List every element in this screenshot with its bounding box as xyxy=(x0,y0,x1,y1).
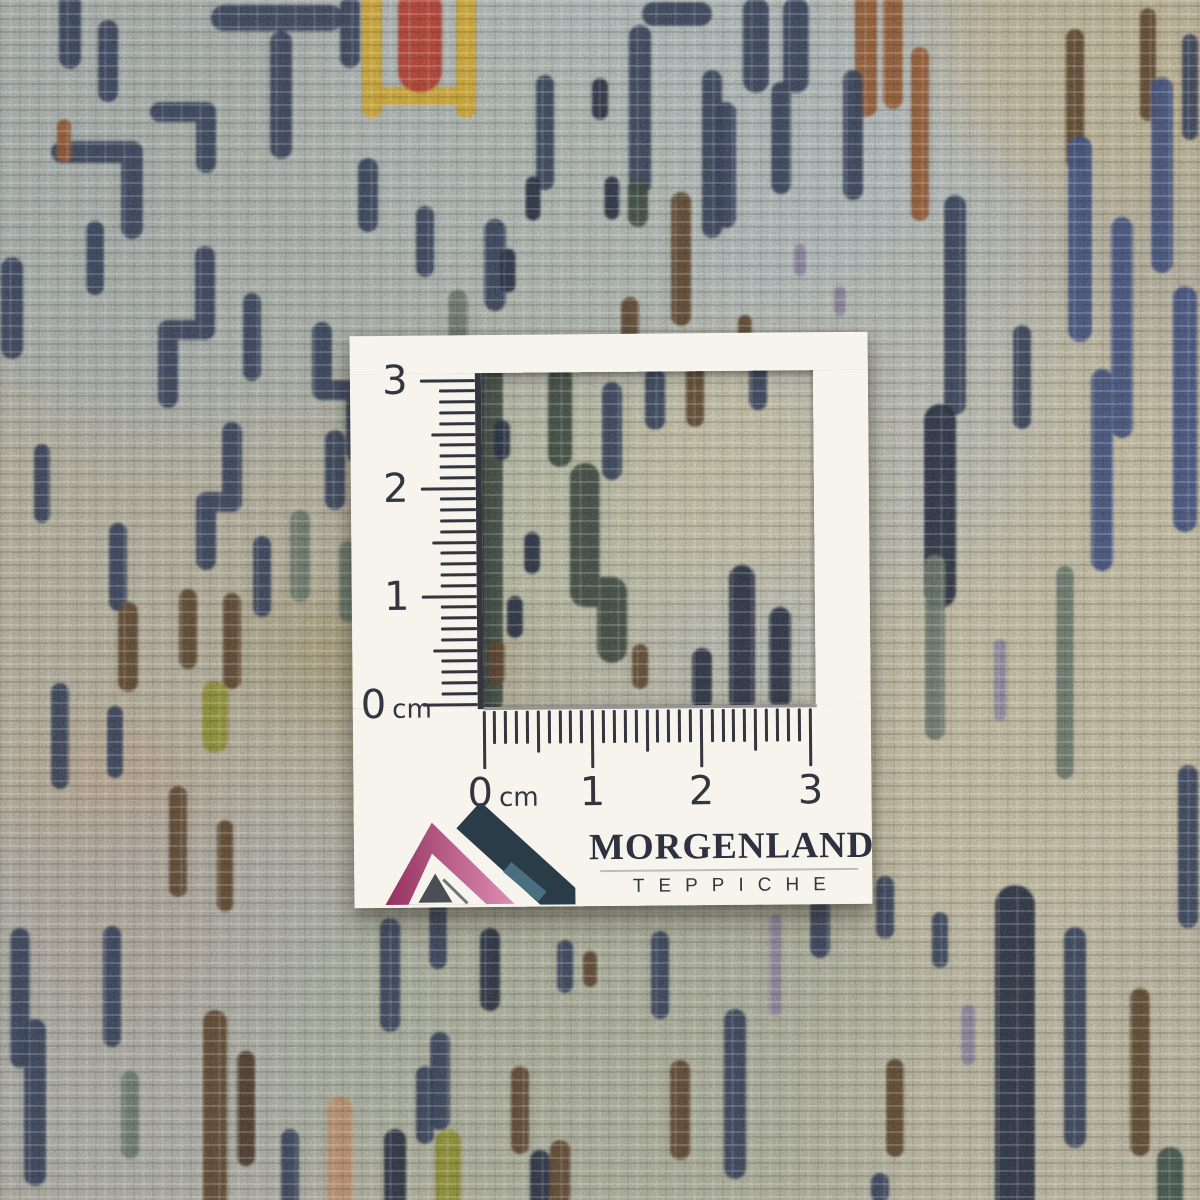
horizontal-ruler-tick xyxy=(721,709,724,742)
vertical-ruler-tick xyxy=(439,411,475,414)
horizontal-ruler-tick xyxy=(624,710,627,743)
horizontal-ruler-tick xyxy=(689,709,692,742)
card-frame-right xyxy=(813,370,871,704)
vertical-ruler-tick xyxy=(440,465,476,468)
vertical-ruler-tick xyxy=(440,562,476,565)
mountain-logo-icon xyxy=(380,802,576,906)
vertical-ruler-tick xyxy=(420,379,475,382)
horizontal-ruler-tick xyxy=(808,708,812,766)
vertical-ruler-tick xyxy=(440,530,476,533)
vertical-ruler-unit: cm xyxy=(392,697,432,723)
vertical-ruler-tick xyxy=(439,400,475,403)
horizontal-ruler-tick xyxy=(515,711,518,744)
horizontal-ruler-tick xyxy=(569,710,572,743)
horizontal-ruler-tick xyxy=(591,710,595,768)
horizontal-ruler-label-3: 3 xyxy=(793,770,827,810)
vertical-ruler-tick xyxy=(441,605,477,608)
vertical-ruler-tick xyxy=(441,659,477,662)
card-frame-top xyxy=(350,332,868,375)
vertical-ruler-tick xyxy=(441,584,477,587)
horizontal-ruler-tick xyxy=(754,709,757,751)
horizontal-ruler-tick xyxy=(743,709,746,742)
vertical-ruler-tick xyxy=(440,508,476,511)
vertical-ruler-ticks xyxy=(350,373,484,714)
brand-name: MORGENLAND xyxy=(589,826,869,868)
horizontal-ruler-tick xyxy=(656,710,659,743)
horizontal-ruler-tick xyxy=(776,709,779,742)
horizontal-ruler-tick xyxy=(526,711,529,744)
horizontal-ruler-tick xyxy=(504,711,507,744)
horizontal-ruler-tick xyxy=(787,708,790,741)
horizontal-ruler-tick xyxy=(493,711,496,744)
horizontal-ruler-tick xyxy=(580,710,583,743)
vertical-ruler-tick xyxy=(440,454,476,457)
horizontal-ruler-tick xyxy=(645,710,648,752)
vertical-ruler-tick xyxy=(433,649,477,652)
horizontal-ruler-tick xyxy=(700,709,704,767)
horizontal-ruler-tick xyxy=(667,709,670,742)
horizontal-ruler-tick xyxy=(732,709,735,742)
vertical-ruler-tick xyxy=(441,638,477,641)
vertical-ruler-label-2: 2 xyxy=(378,469,414,509)
horizontal-ruler-tick xyxy=(558,710,561,743)
horizontal-ruler-tick xyxy=(634,710,637,743)
horizontal-ruler-tick xyxy=(678,709,681,742)
vertical-ruler-tick xyxy=(441,627,477,630)
horizontal-ruler-tick xyxy=(602,710,605,743)
card-cutout-window xyxy=(481,370,816,707)
vertical-ruler-tick xyxy=(439,443,475,446)
brand-division: TEPPICHE xyxy=(589,874,869,898)
vertical-ruler-label-1: 1 xyxy=(379,577,415,617)
vertical-ruler-tick xyxy=(440,497,476,500)
horizontal-ruler-tick xyxy=(765,709,768,742)
horizontal-ruler-tick xyxy=(547,711,550,744)
vertical-ruler-tick xyxy=(442,692,478,695)
vertical-ruler-zero: 0 xyxy=(361,685,387,725)
vertical-ruler-tick xyxy=(422,595,477,598)
vertical-ruler-tick xyxy=(421,487,476,490)
carpet-photo: 3 2 1 0 cm 0 cm 1 2 3 xyxy=(0,0,1200,1200)
horizontal-ruler-tick xyxy=(613,710,616,743)
horizontal-ruler-tick xyxy=(710,709,713,742)
vertical-ruler-tick xyxy=(439,389,475,392)
horizontal-ruler-tick xyxy=(537,711,540,753)
horizontal-ruler-tick xyxy=(482,711,486,769)
vertical-ruler-label-0: 0 cm xyxy=(361,685,432,726)
vertical-ruler-tick xyxy=(440,551,476,554)
vertical-ruler-tick xyxy=(439,422,475,425)
vertical-ruler-tick xyxy=(440,519,476,522)
vertical-ruler-tick xyxy=(440,476,476,479)
vertical-ruler-tick xyxy=(441,573,477,576)
horizontal-ruler-label-2: 2 xyxy=(684,771,718,811)
vertical-ruler-tick xyxy=(441,670,477,673)
horizontal-ruler-label-1: 1 xyxy=(575,772,609,812)
vertical-ruler-tick xyxy=(431,433,475,436)
measuring-card: 3 2 1 0 cm 0 cm 1 2 3 xyxy=(350,332,873,908)
vertical-ruler-tick xyxy=(441,616,477,619)
vertical-ruler-tick xyxy=(442,681,478,684)
horizontal-ruler-tick xyxy=(797,708,800,741)
vertical-ruler-tick xyxy=(432,541,476,544)
vertical-ruler-label-3: 3 xyxy=(377,361,413,401)
